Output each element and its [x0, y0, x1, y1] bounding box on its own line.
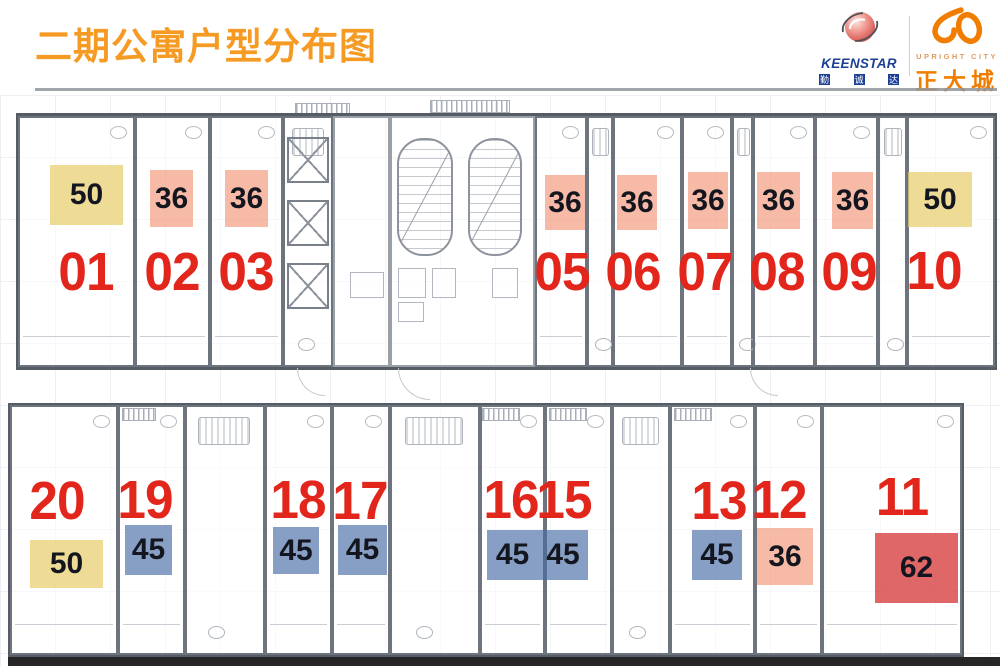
service-shaft: [390, 405, 480, 655]
slide: 二期公寓户型分布图 KEENSTAR 勤 诚 达: [0, 0, 1000, 666]
area-patch-12: 36: [757, 528, 813, 585]
unit-number-16: 16: [483, 473, 538, 527]
area-patch-16: 45: [487, 530, 538, 580]
area-patch-19: 45: [125, 525, 172, 575]
unit-number-11: 11: [876, 470, 928, 524]
area-label-10: 50: [923, 185, 956, 215]
unit-number-20: 20: [29, 474, 84, 528]
area-label-15: 45: [546, 540, 579, 570]
staircase-icon: [468, 138, 522, 256]
unit-number-01: 01: [58, 245, 113, 299]
unit-number-10: 10: [906, 244, 961, 298]
area-label-17: 45: [346, 535, 379, 565]
service-room: [398, 268, 426, 298]
area-patch-18: 45: [273, 527, 319, 574]
unit-number-15: 15: [536, 473, 591, 527]
service-room: [398, 302, 424, 322]
unit-number-08: 08: [749, 245, 804, 299]
unit-number-18: 18: [270, 473, 325, 527]
area-patch-15: 45: [538, 530, 588, 580]
elevator-shaft-icon: [287, 200, 329, 246]
area-label-16: 45: [496, 540, 529, 570]
unit-number-07: 07: [677, 245, 732, 299]
area-patch-20: 50: [30, 540, 103, 588]
unit-number-02: 02: [144, 245, 199, 299]
elevator-shaft-icon: [287, 137, 329, 183]
service-room: [350, 272, 384, 298]
hatch-mark: [430, 100, 510, 113]
unit-number-05: 05: [534, 245, 589, 299]
area-patch-10: 50: [908, 172, 972, 227]
area-label-18: 45: [279, 536, 312, 566]
unit-number-13: 13: [691, 474, 746, 528]
plan-bottom-wall: [8, 657, 1000, 666]
area-patch-02: 36: [150, 170, 193, 227]
area-patch-09: 36: [832, 172, 873, 229]
floor-plan: 50 36 36 36 36 36 36 36 50 50 45 45 45 4…: [0, 0, 1000, 666]
unit-number-09: 09: [821, 245, 876, 299]
unit-number-17: 17: [332, 474, 387, 528]
service-shaft: [185, 405, 265, 655]
area-label-12: 36: [768, 542, 801, 572]
area-label-02: 36: [155, 184, 188, 214]
unit-number-03: 03: [218, 245, 273, 299]
area-patch-13: 45: [692, 530, 742, 580]
hatch-mark: [122, 408, 156, 421]
service-shaft: [612, 405, 670, 655]
area-label-05: 36: [548, 188, 581, 218]
hatch-mark: [549, 408, 587, 421]
elevator-lobby: [333, 116, 390, 367]
elevator-shaft-icon: [287, 263, 329, 309]
service-room: [492, 268, 518, 298]
service-room: [432, 268, 456, 298]
area-patch-03: 36: [225, 170, 268, 227]
hatch-mark: [674, 408, 712, 421]
unit-number-06: 06: [605, 245, 660, 299]
area-patch-06: 36: [617, 175, 657, 230]
area-label-01: 50: [70, 180, 103, 210]
area-label-03: 36: [230, 184, 263, 214]
area-patch-08: 36: [757, 172, 800, 229]
area-label-13: 45: [700, 540, 733, 570]
area-patch-07: 36: [688, 172, 728, 229]
area-patch-01: 50: [50, 165, 123, 225]
area-label-08: 36: [762, 186, 795, 216]
area-label-19: 45: [132, 535, 165, 565]
area-patch-05: 36: [545, 175, 585, 230]
hatch-mark: [482, 408, 520, 421]
area-label-11: 62: [900, 553, 933, 583]
unit-11: [822, 405, 962, 655]
area-label-06: 36: [620, 188, 653, 218]
area-label-20: 50: [50, 549, 83, 579]
unit-number-12: 12: [751, 473, 806, 527]
staircase-icon: [397, 138, 453, 256]
area-patch-17: 45: [338, 525, 387, 575]
area-label-09: 36: [836, 186, 869, 216]
service-shaft: [878, 116, 907, 367]
area-label-07: 36: [691, 186, 724, 216]
area-patch-11: 62: [875, 533, 958, 603]
unit-number-19: 19: [117, 473, 172, 527]
